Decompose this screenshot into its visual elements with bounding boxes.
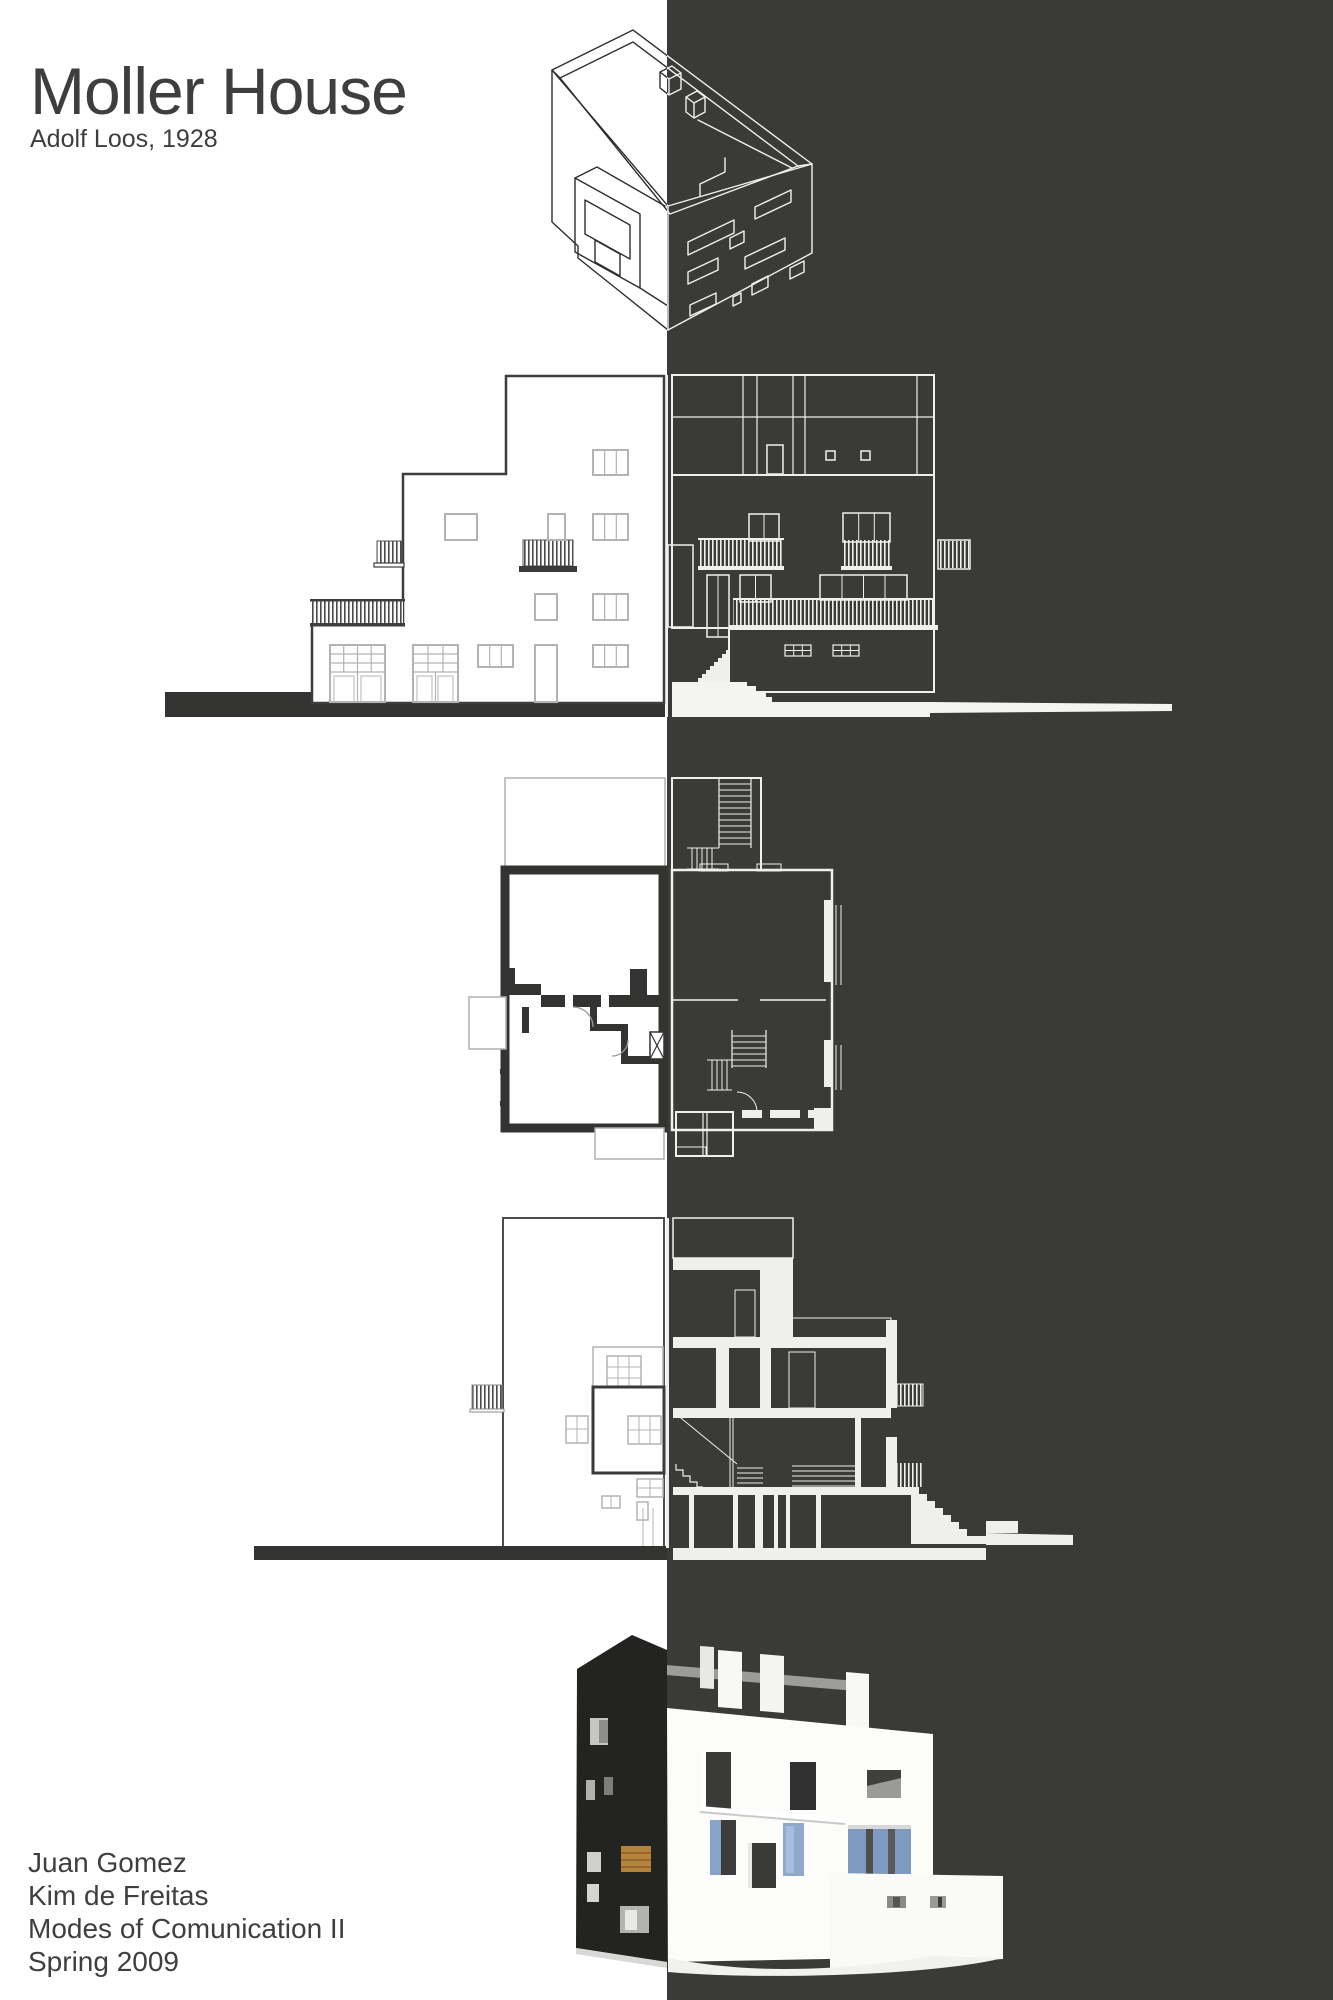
section-drawing bbox=[240, 1210, 1260, 1570]
section-left-half bbox=[254, 1218, 667, 1560]
plan-left-half bbox=[469, 778, 665, 1159]
model-render bbox=[420, 1620, 1080, 1990]
floor-plan-drawing bbox=[440, 760, 860, 1170]
render-terrace bbox=[830, 1873, 1003, 1969]
credit-line: Spring 2009 bbox=[28, 1945, 346, 1978]
poster-subtitle: Adolf Loos, 1928 bbox=[30, 125, 407, 154]
credit-line: Kim de Freitas bbox=[28, 1879, 346, 1912]
plan-right-half bbox=[672, 778, 841, 1156]
poster-header: Moller House Adolf Loos, 1928 bbox=[30, 58, 407, 154]
credit-line: Juan Gomez bbox=[28, 1846, 346, 1879]
credits: Juan Gomez Kim de Freitas Modes of Comun… bbox=[28, 1846, 346, 1978]
elevation-right-half bbox=[666, 375, 1172, 717]
section-right-half bbox=[666, 1218, 1073, 1560]
render-dark-facade bbox=[576, 1635, 667, 1968]
credit-line: Modes of Comunication II bbox=[28, 1912, 346, 1945]
elevation-left-half bbox=[165, 376, 665, 717]
axonometric-drawing bbox=[440, 20, 860, 340]
elevation-drawing bbox=[140, 360, 1200, 720]
poster-title: Moller House bbox=[30, 58, 407, 124]
poster: Moller House Adolf Loos, 1928 bbox=[0, 0, 1333, 2000]
render-orange-window bbox=[621, 1846, 651, 1872]
